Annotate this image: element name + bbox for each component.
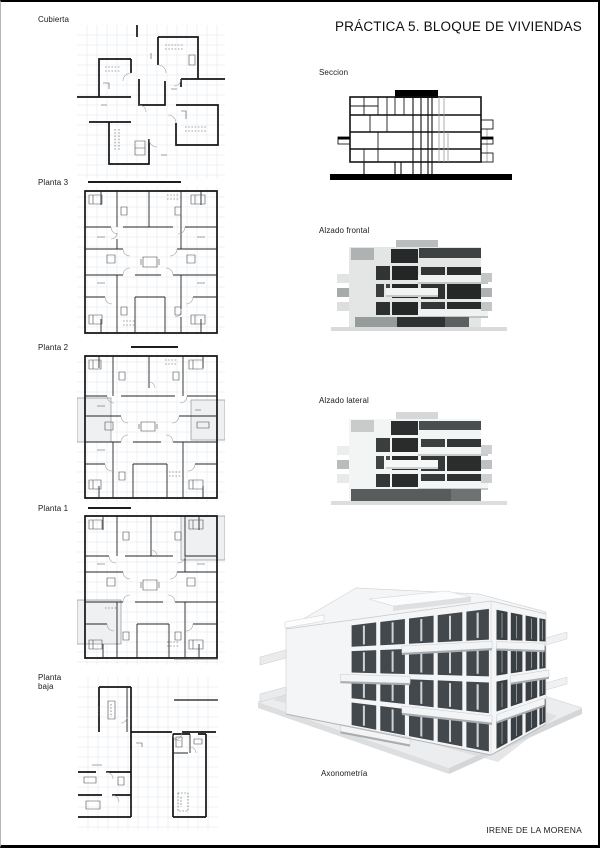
front-elevation-drawing [329, 236, 514, 336]
plan-planta-3-drawing [77, 187, 225, 337]
side-elevation-drawing [329, 408, 514, 508]
section-balconies [338, 120, 493, 162]
plan-grid [77, 25, 225, 179]
section-drawing [327, 84, 517, 184]
label-planta-baja: Planta baja [38, 673, 70, 691]
plan-edge-line [131, 346, 178, 348]
side-wing [191, 400, 225, 440]
facade-panel [351, 248, 374, 260]
door-arcs [105, 227, 193, 317]
plan-cubierta-drawing [77, 25, 225, 179]
plan-planta-1-drawing [77, 512, 225, 665]
ground-floor [355, 317, 469, 327]
side-wing [77, 398, 111, 442]
base-line [331, 501, 507, 505]
author-name: IRENE DE LA MORENA [486, 825, 582, 835]
plan-edge-line [88, 181, 181, 183]
facade-panel [351, 420, 374, 432]
ground-floor [351, 489, 481, 501]
label-planta-3: Planta 3 [38, 178, 68, 187]
label-cubierta: Cubierta [38, 15, 69, 24]
label-seccion: Seccion [319, 68, 348, 77]
plan-edge-line [88, 507, 131, 509]
ground-line [330, 174, 512, 180]
sheet: PRÁCTICA 5. BLOQUE DE VIVIENDAS IRENE DE… [0, 0, 600, 848]
door-arcs [105, 382, 195, 471]
plan-planta-baja-drawing [78, 677, 218, 830]
roof-parapet [396, 240, 438, 247]
label-planta-1: Planta 1 [38, 504, 68, 513]
plan-grid [77, 187, 225, 337]
section-structure [350, 97, 487, 174]
label-alzado-lateral: Alzado lateral [319, 396, 369, 405]
sheet-title: PRÁCTICA 5. BLOQUE DE VIVIENDAS [335, 19, 582, 34]
axonometry-drawing [251, 562, 591, 777]
door-arcs [106, 717, 196, 802]
label-planta-2: Planta 2 [38, 343, 68, 352]
base-line [331, 327, 507, 331]
label-alzado-frontal: Alzado frontal [319, 226, 369, 235]
walls [77, 25, 225, 164]
door-arcs [123, 65, 181, 147]
roof-parapet [396, 412, 438, 419]
side-wing [77, 600, 121, 644]
plan-planta-2-drawing [77, 352, 225, 502]
